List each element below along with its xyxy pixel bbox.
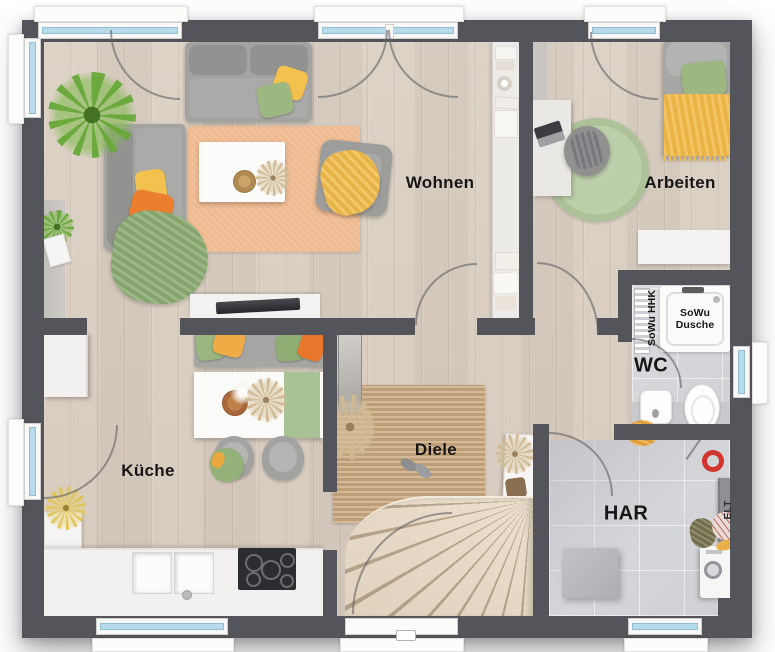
har-gray-box — [562, 548, 618, 598]
bed-pillow-green — [680, 60, 727, 98]
faucet — [182, 590, 192, 600]
outer-wall-right — [730, 20, 752, 638]
shower-label: SoWu Dusche — [666, 307, 724, 331]
washer-door — [704, 561, 722, 579]
window-glass — [738, 350, 745, 394]
wall-shelf — [533, 42, 547, 100]
shower-drain — [713, 296, 720, 303]
fridge — [44, 333, 88, 397]
room-label-diele: Diele — [415, 440, 457, 460]
wall-wc-har — [614, 424, 730, 440]
washer-control — [706, 550, 722, 554]
room-label-har: HAR — [604, 503, 648, 526]
washing-machine — [700, 546, 734, 598]
radiator-label: SoWu HHK — [646, 290, 658, 346]
burner — [246, 572, 261, 587]
sill-bottom-kueche — [92, 638, 234, 652]
window-kueche-bottom — [96, 618, 228, 635]
sink-basin-left — [132, 552, 172, 594]
sill-left-kueche — [8, 419, 24, 506]
window-glass — [100, 623, 224, 630]
wall-kueche-diele-upper — [323, 332, 337, 492]
bookshelf — [492, 42, 519, 318]
sill-right-wc — [752, 342, 768, 404]
chair-2-seat — [269, 442, 297, 472]
entrance-door — [345, 618, 458, 635]
wall-wohnen-arbeiten — [519, 42, 533, 335]
room-label-arbeiten: Arbeiten — [644, 173, 715, 193]
sill-top-terrace — [34, 6, 188, 22]
sill-left-wohnen — [8, 34, 24, 124]
window-glass — [29, 427, 36, 496]
electrical-label: ELT — [722, 500, 734, 519]
burner — [280, 553, 295, 568]
sill-top-arbeiten — [584, 6, 666, 22]
burner — [261, 560, 281, 580]
shower-head — [682, 287, 704, 293]
decor-plate — [233, 170, 256, 193]
wall-wohnen-kueche-left — [44, 318, 87, 335]
palm-plant — [48, 72, 136, 158]
wall-corridor-stub — [597, 318, 620, 335]
canvas-dried-plant — [496, 434, 534, 474]
room-label-wohnen: Wohnen — [406, 173, 475, 193]
window-har-bottom — [628, 618, 702, 635]
burner — [280, 574, 294, 588]
sill-top-frenchdoor — [314, 6, 464, 22]
dried-bouquet — [246, 378, 286, 422]
cooktop — [238, 548, 296, 590]
toilet-seat — [691, 395, 715, 427]
floorplan-canvas: Wohnen Arbeiten Küche Diele WC HAR SoWu … — [0, 0, 775, 652]
window-kueche-left — [24, 423, 41, 500]
office-chair-cushion — [569, 129, 605, 171]
blanket-fringe — [664, 156, 730, 161]
window-wc-right — [733, 346, 750, 398]
sill-bottom-har — [624, 638, 708, 652]
office-chair — [564, 126, 610, 176]
door-handle — [396, 630, 416, 641]
table-plant — [256, 160, 290, 196]
arbeiten-sideboard — [638, 230, 730, 264]
sofa-top-back-cushions — [189, 45, 247, 75]
basin-drain — [652, 409, 659, 418]
wall-har-left — [533, 424, 549, 616]
wall-kueche-diele-lower — [323, 550, 337, 616]
room-label-wc: WC — [634, 355, 668, 378]
room-label-kueche: Küche — [121, 461, 174, 481]
wall-arbeiten-wc — [618, 270, 730, 285]
chair-2 — [262, 436, 304, 480]
window-wohnen-left — [24, 38, 41, 118]
wash-basin — [640, 390, 672, 424]
bed-blanket-yellow — [664, 94, 730, 156]
sink-basin-right — [174, 552, 214, 594]
window-glass — [632, 623, 698, 630]
wall-wohnen-kueche-right — [180, 318, 415, 335]
window-glass — [29, 42, 36, 114]
table-runner-green — [284, 372, 320, 438]
